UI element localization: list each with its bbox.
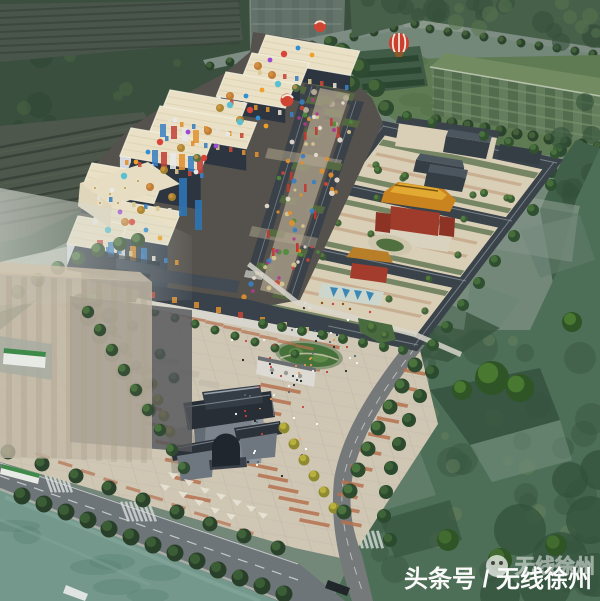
svg-text:头条号 / 无线徐州: 头条号 / 无线徐州 — [404, 565, 592, 593]
